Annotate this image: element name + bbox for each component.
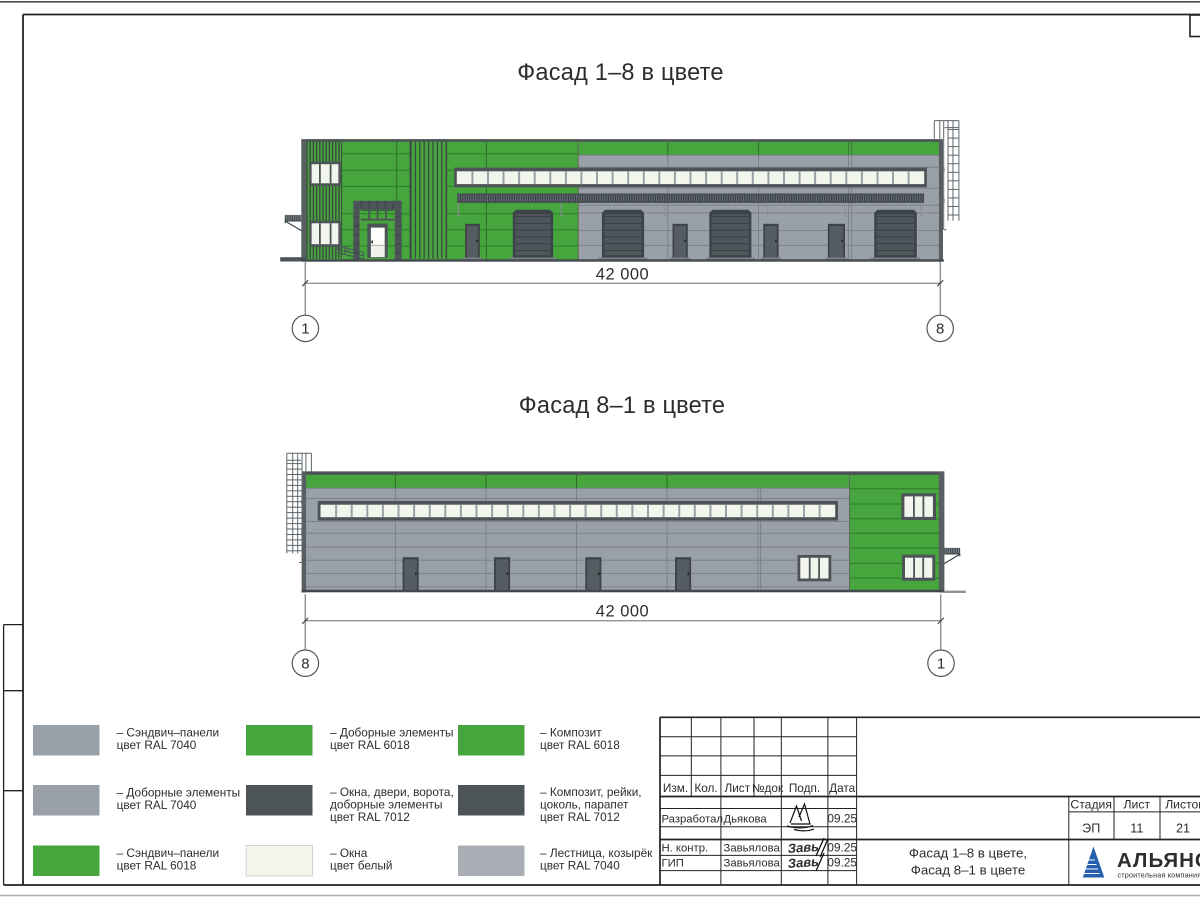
svg-text:ГИП: ГИП [662,858,684,870]
svg-text:цвет RAL 6018: цвет RAL 6018 [330,738,410,752]
svg-text:1: 1 [937,655,945,672]
svg-text:№док: №док [752,781,784,795]
svg-text:цвет RAL 7040: цвет RAL 7040 [117,798,197,812]
svg-text:Фасад 1–8 в цвете,: Фасад 1–8 в цвете, [909,846,1027,861]
svg-text:09.25: 09.25 [827,812,857,826]
svg-text:09.25: 09.25 [827,841,857,855]
svg-text:Стадия: Стадия [1070,797,1112,811]
svg-text:цвет RAL 6018: цвет RAL 6018 [540,738,620,752]
svg-text:42 000: 42 000 [596,266,649,284]
svg-text:цвет RAL 7012: цвет RAL 7012 [540,810,620,824]
svg-text:Лист: Лист [1124,797,1151,811]
svg-text:Лист: Лист [724,781,750,795]
svg-text:цвет RAL 7040: цвет RAL 7040 [540,858,620,872]
svg-text:Подп.: Подп. [789,781,820,795]
svg-text:Фасад 1–8 в цвете: Фасад 1–8 в цвете [517,60,724,86]
svg-text:42 000: 42 000 [596,603,649,621]
svg-text:цвет белый: цвет белый [330,858,393,872]
svg-text:Дата: Дата [829,781,856,795]
svg-text:09.25: 09.25 [827,856,857,870]
svg-text:8: 8 [936,321,944,338]
svg-text:Листов: Листов [1165,797,1200,811]
svg-text:цвет RAL 7040: цвет RAL 7040 [117,738,197,752]
svg-text:цвет RAL 7012: цвет RAL 7012 [330,810,410,824]
svg-text:21: 21 [1176,822,1190,836]
svg-text:Завь: Завь [787,854,819,871]
svg-text:Кол.: Кол. [694,781,717,795]
svg-text:ЭП: ЭП [1082,822,1100,836]
svg-text:Фасад 8–1 в цвете: Фасад 8–1 в цвете [911,863,1025,878]
svg-text:Завьялова: Завьялова [724,843,781,855]
svg-text:АЛЬЯНС: АЛЬЯНС [1117,849,1200,872]
svg-text:Завьялова: Завьялова [724,858,781,870]
svg-text:11: 11 [1130,822,1143,836]
svg-text:8: 8 [301,655,309,672]
svg-text:Дьякова: Дьякова [724,814,768,826]
svg-text:Изм.: Изм. [663,781,688,795]
svg-text:Н. контр.: Н. контр. [662,843,709,855]
svg-text:строительная компания: строительная компания [1118,871,1200,880]
svg-text:Фасад 8–1 в цвете: Фасад 8–1 в цвете [519,393,726,419]
svg-text:цвет RAL 6018: цвет RAL 6018 [117,858,197,872]
svg-text:Разработал: Разработал [662,814,724,826]
svg-text:1: 1 [301,321,309,338]
